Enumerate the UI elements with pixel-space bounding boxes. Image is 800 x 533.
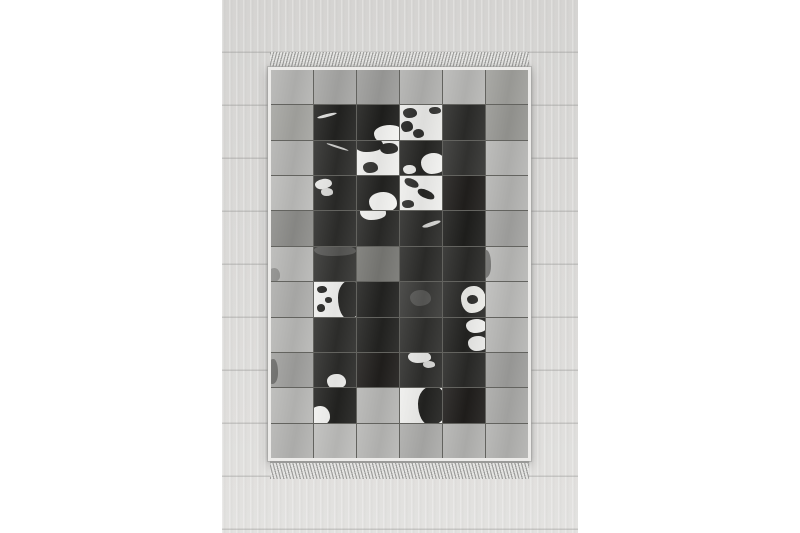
rug-patch xyxy=(271,388,313,422)
rug-patch xyxy=(357,70,399,104)
rug-patch xyxy=(443,105,485,139)
hide-spot xyxy=(422,219,442,229)
hide-spot xyxy=(402,200,415,208)
rug-patch xyxy=(443,247,485,281)
rug-patch xyxy=(357,282,399,316)
hide-spot xyxy=(326,143,349,152)
rug-patch xyxy=(486,70,528,104)
rug-patch xyxy=(443,141,485,175)
hide-spot xyxy=(271,268,280,281)
rug-patch xyxy=(486,211,528,245)
rug-patch xyxy=(486,282,528,316)
rug-patch xyxy=(400,211,442,245)
rug-patch xyxy=(314,247,356,281)
hide-spot xyxy=(403,108,417,118)
hide-spot xyxy=(374,125,399,139)
rug-patch xyxy=(314,176,356,210)
hide-spot xyxy=(421,153,442,174)
hide-spot xyxy=(338,282,356,316)
rug-patch xyxy=(486,388,528,422)
rug-patch xyxy=(486,318,528,352)
rug-patch xyxy=(443,424,485,458)
rug-patch xyxy=(271,211,313,245)
rug-patch xyxy=(400,424,442,458)
hide-spot xyxy=(401,121,414,133)
rug-patch xyxy=(400,388,442,422)
rug-patch xyxy=(271,247,313,281)
rug-patch xyxy=(271,424,313,458)
rug-patch xyxy=(271,318,313,352)
rug-patch xyxy=(400,141,442,175)
rug-patch xyxy=(271,176,313,210)
hide-spot xyxy=(410,290,431,306)
hide-spot xyxy=(403,176,420,190)
hide-spot xyxy=(325,297,333,302)
rug-patch xyxy=(400,353,442,387)
hide-spot xyxy=(327,374,346,388)
rug-patch xyxy=(400,282,442,316)
rug-patch xyxy=(486,141,528,175)
rug-patch xyxy=(271,353,313,387)
rug-patch xyxy=(486,105,528,139)
hide-spot xyxy=(271,359,278,384)
page-background: { "image": { "kind": "product-photo", "s… xyxy=(0,0,800,533)
rug-patch xyxy=(486,424,528,458)
rug-patch xyxy=(443,70,485,104)
rug-patch xyxy=(357,105,399,139)
hide-spot xyxy=(468,336,485,350)
hide-spot xyxy=(486,250,491,277)
rug-patch xyxy=(400,105,442,139)
rug-patch xyxy=(357,388,399,422)
rug-patch xyxy=(314,105,356,139)
hide-spot xyxy=(317,304,325,312)
hide-spot xyxy=(466,319,485,333)
rug-patch xyxy=(357,353,399,387)
hide-spot xyxy=(317,286,326,293)
rug-patch xyxy=(314,388,356,422)
rug-grid xyxy=(271,70,528,458)
rug-patch xyxy=(271,70,313,104)
rug-patch xyxy=(443,176,485,210)
hide-spot xyxy=(429,107,441,115)
rug-patch xyxy=(314,353,356,387)
rug-patch xyxy=(400,318,442,352)
rug-patch xyxy=(443,282,485,316)
rug-patch xyxy=(357,424,399,458)
hide-spot xyxy=(314,406,330,423)
rug-patch xyxy=(314,70,356,104)
rug-patch xyxy=(400,70,442,104)
rug-patch xyxy=(314,141,356,175)
rug-patch xyxy=(314,318,356,352)
rug-patch xyxy=(443,353,485,387)
hide-spot xyxy=(418,388,442,422)
rug-patch xyxy=(271,282,313,316)
rug-patch xyxy=(314,424,356,458)
rug-patch xyxy=(443,318,485,352)
hide-spot xyxy=(416,187,435,202)
hide-spot xyxy=(317,112,337,120)
rug-patch xyxy=(486,247,528,281)
rug-patch xyxy=(400,176,442,210)
rug-patch xyxy=(443,388,485,422)
rug-patch xyxy=(486,353,528,387)
rug-patch xyxy=(357,318,399,352)
rug-patch xyxy=(486,176,528,210)
hide-spot xyxy=(321,188,334,196)
rug-patch xyxy=(400,247,442,281)
rug-patch xyxy=(357,247,399,281)
rug-patch xyxy=(314,282,356,316)
hide-spot xyxy=(314,247,356,257)
rug-patch xyxy=(443,211,485,245)
rug-patch xyxy=(357,141,399,175)
rug-patch xyxy=(357,211,399,245)
rug-fringe-bottom xyxy=(270,461,529,479)
hide-spot xyxy=(363,162,378,173)
rug-patch xyxy=(271,141,313,175)
rug-patch xyxy=(271,105,313,139)
hide-spot xyxy=(423,361,436,368)
rug-body xyxy=(268,67,531,461)
hide-spot xyxy=(403,165,416,175)
rug-patch xyxy=(314,211,356,245)
hide-spot xyxy=(369,192,398,211)
hide-spot xyxy=(360,211,385,219)
hide-spot xyxy=(413,129,424,138)
rug-patch xyxy=(357,176,399,210)
hide-spot xyxy=(380,143,398,153)
